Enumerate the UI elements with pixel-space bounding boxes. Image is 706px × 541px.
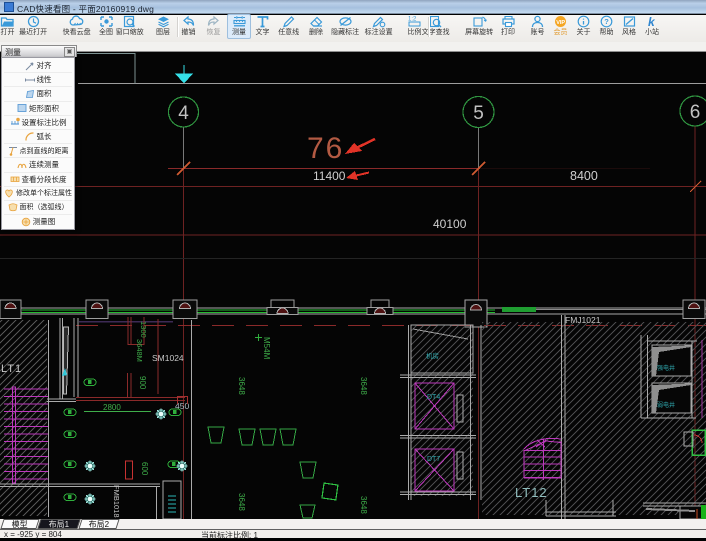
svg-text:FMJ1021: FMJ1021 [565, 315, 601, 325]
svg-text:3648: 3648 [359, 496, 368, 514]
svg-text:900: 900 [138, 376, 147, 390]
svg-text:?: ? [604, 17, 609, 26]
svg-text:DT7: DT7 [427, 456, 440, 463]
svg-text:6: 6 [690, 102, 701, 123]
svg-text:5: 5 [473, 103, 484, 124]
svg-text:机房: 机房 [426, 351, 439, 360]
svg-text:40100: 40100 [433, 217, 467, 231]
svg-text:FMB1018: FMB1018 [112, 485, 121, 518]
svg-text:4: 4 [178, 103, 189, 124]
svg-text:3648: 3648 [359, 377, 368, 395]
svg-text:2800: 2800 [103, 403, 121, 412]
svg-text:600: 600 [140, 462, 149, 476]
svg-text:LT12: LT12 [515, 485, 548, 500]
svg-text:76: 76 [307, 132, 344, 165]
svg-text:DT4: DT4 [427, 394, 440, 401]
svg-text:3648M: 3648M [135, 339, 144, 362]
svg-text:M54M: M54M [262, 337, 271, 360]
svg-text:1300: 1300 [139, 321, 148, 338]
svg-text:LT1: LT1 [1, 363, 22, 375]
svg-text:11400: 11400 [313, 169, 346, 183]
svg-text:3648: 3648 [237, 493, 246, 511]
svg-text:弱电井: 弱电井 [657, 401, 675, 409]
svg-text:强电井: 强电井 [657, 364, 675, 372]
svg-text:SM1024: SM1024 [152, 353, 184, 363]
svg-text:VIP: VIP [556, 20, 565, 26]
svg-text:3648: 3648 [237, 377, 246, 395]
svg-text:8400: 8400 [570, 169, 598, 183]
